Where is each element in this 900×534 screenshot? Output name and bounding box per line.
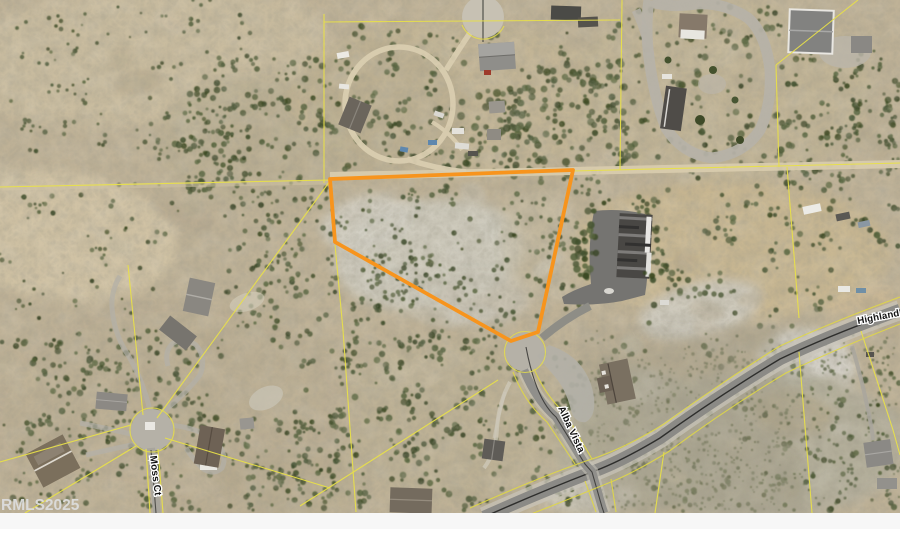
svg-text:RMLS2025: RMLS2025 [1,497,80,514]
